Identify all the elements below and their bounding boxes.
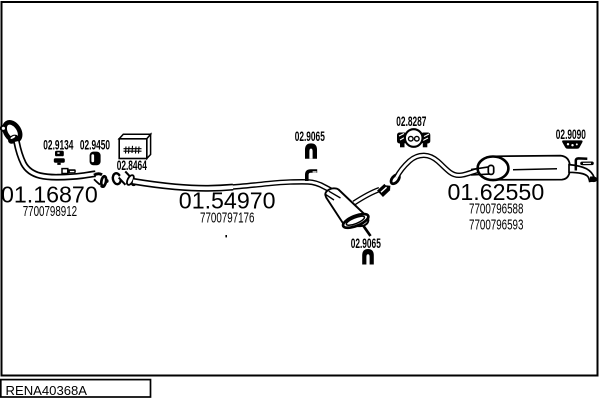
- svg-text:02.9450: 02.9450: [80, 139, 110, 154]
- svg-text:7700797176: 7700797176: [200, 210, 255, 226]
- svg-text:7700796588: 7700796588: [469, 201, 524, 217]
- svg-text:02.9065: 02.9065: [295, 130, 326, 145]
- svg-text:7700798912: 7700798912: [23, 203, 78, 219]
- svg-text:02.8464: 02.8464: [117, 159, 148, 174]
- svg-text:RENA40368A: RENA40368A: [6, 383, 88, 398]
- svg-text:7700796593: 7700796593: [469, 217, 524, 233]
- svg-text:02.8287: 02.8287: [396, 115, 426, 130]
